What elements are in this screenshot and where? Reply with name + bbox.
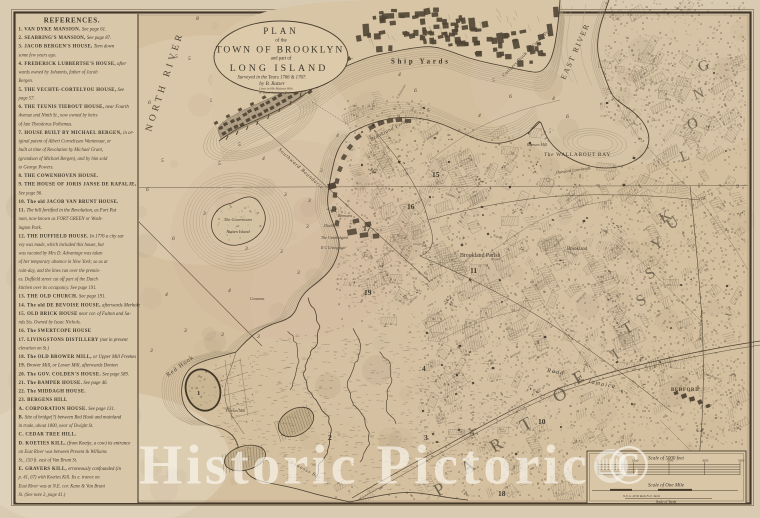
svg-text:East River was at N.E. cor. Ka: East River was at N.E. cor. Kane & Van B… xyxy=(18,484,106,489)
svg-text:Surveyed in the Years 1766 & 1: Surveyed in the Years 1766 & 1767. xyxy=(238,76,307,81)
svg-text:See page 96.: See page 96. xyxy=(19,191,43,196)
svg-text:was vacated by Mrs D. Advanta: was vacated by Mrs D. Advantage was take… xyxy=(19,252,104,257)
svg-text:5: 5 xyxy=(161,158,164,164)
svg-text:3: 3 xyxy=(149,348,153,354)
svg-text:Freekes Mill: Freekes Mill xyxy=(225,409,245,413)
svg-text:some few years ago.: some few years ago. xyxy=(19,53,57,58)
svg-text:18. The OLD BROWER MILL, or Up: 18. The OLD BROWER MILL, or Upper Mill F… xyxy=(19,355,137,360)
svg-text:10: 10 xyxy=(538,417,546,426)
svg-text:B. Site of bridge(?) between R: B. Site of bridge(?) between Red Hook an… xyxy=(19,415,122,420)
svg-text:St. (See note 2, page 41.): St. (See note 2, page 41.) xyxy=(19,493,66,498)
svg-text:Ship Yards: Ship Yards xyxy=(391,59,451,66)
svg-text:9. THE HOUSE OF JORIS JANSE DE: 9. THE HOUSE OF JORIS JANSE DE RAPALJE, xyxy=(19,183,137,188)
svg-text:LONG ISLAND: LONG ISLAND xyxy=(230,63,329,74)
svg-text:5: 5 xyxy=(427,108,430,114)
svg-text:19. Brower Mill, or Lower Mill: 19. Brower Mill, or Lower Mill, afterwar… xyxy=(19,364,119,369)
svg-text:of the: of the xyxy=(275,39,287,44)
svg-text:5: 5 xyxy=(175,54,178,60)
svg-text:8: 8 xyxy=(196,16,199,22)
svg-text:Bergen.: Bergen. xyxy=(19,79,34,84)
svg-text:6: 6 xyxy=(414,88,417,94)
svg-text:4: 4 xyxy=(478,113,481,119)
svg-text:3000: 3000 xyxy=(702,459,709,463)
svg-text:D. KOETIES KILL, (from Koetje,: D. KOETIES KILL, (from Koetje, a cow) it… xyxy=(19,441,132,446)
svg-text:Scale of Yards: Scale of Yards xyxy=(656,500,677,504)
svg-text:11. The hill fortified in the: 11. The hill fortified in the Revolution… xyxy=(19,209,117,214)
svg-text:kitchen over its occupancy. Se: kitchen over its occupancy. See page 191… xyxy=(19,286,97,291)
svg-text:6: 6 xyxy=(146,187,149,193)
svg-text:7. HOUSE BUILT BY MICHAEL BERG: 7. HOUSE BUILT BY MICHAEL BERGEN, in or- xyxy=(19,131,135,136)
svg-text:1: 1 xyxy=(197,390,200,397)
svg-text:to George Powers.: to George Powers. xyxy=(19,165,54,170)
svg-text:St., 150 ft. east of Van Brunt: St., 150 ft. east of Van Brunt St. xyxy=(19,459,78,464)
svg-text:BEDFORD: BEDFORD xyxy=(671,388,699,393)
svg-text:built at time of Revolution by: built at time of Revolution by Michael G… xyxy=(19,148,104,153)
svg-text:6: 6 xyxy=(172,236,175,242)
svg-text:elevation on St.): elevation on St.) xyxy=(19,346,50,351)
svg-text:1. VAN DYKE MANSION. See page: 1. VAN DYKE MANSION. See page 61. xyxy=(19,28,107,33)
svg-text:3: 3 xyxy=(220,332,224,338)
svg-text:20. The GOV. COLDEN'S HOUSE. S: 20. The GOV. COLDEN'S HOUSE. See page 58… xyxy=(19,372,130,377)
svg-text:ington Park.: ington Park. xyxy=(19,226,42,231)
svg-text:Avenue and Ninth St., now owne: Avenue and Ninth St., now owned by heirs xyxy=(18,114,98,119)
svg-text:4: 4 xyxy=(262,156,265,162)
svg-text:3: 3 xyxy=(296,270,300,276)
svg-text:The WALLABOUT BAY: The WALLABOUT BAY xyxy=(544,152,611,158)
svg-text:6. THE TEUNIS TIEBOUT HOUSE, n: 6. THE TEUNIS TIEBOUT HOUSE, near Fourth xyxy=(19,105,130,110)
svg-text:TOWN OF BROOKLYN: TOWN OF BROOKLYN xyxy=(216,45,344,56)
svg-text:3: 3 xyxy=(305,224,309,230)
svg-text:A. CORPORATION HOUSE. See page: A. CORPORATION HOUSE. See page 131. xyxy=(19,407,116,412)
svg-text:5: 5 xyxy=(188,56,191,62)
svg-text:6: 6 xyxy=(566,114,569,120)
svg-text:R C Livingston: R C Livingston xyxy=(320,245,345,250)
svg-text:nds Sts. Owned by Isaac Nichol: nds Sts. Owned by Isaac Nichols. xyxy=(19,321,81,326)
svg-text:(grandson of Michael Bergen),: (grandson of Michael Bergen), and by him… xyxy=(19,157,109,162)
svg-text:16. The SWERTCOPE HOUSE: 16. The SWERTCOPE HOUSE xyxy=(19,329,92,334)
svg-text:REFERENCES.: REFERENCES. xyxy=(44,17,101,25)
svg-text:and part of: and part of xyxy=(271,57,292,62)
svg-text:of her temporary absence in Ne: of her temporary absence in New York; so… xyxy=(19,260,109,265)
svg-text:nam, now known as FORT GREEN o: nam, now known as FORT GREEN or Wash- xyxy=(19,217,104,222)
svg-text:PLAN: PLAN xyxy=(263,26,299,36)
svg-text:15. OLD BRICK HOUSE near cor.: 15. OLD BRICK HOUSE near cor. of Fulton … xyxy=(19,312,132,317)
svg-text:3: 3 xyxy=(183,328,187,334)
svg-text:The Governours: The Governours xyxy=(224,217,252,222)
svg-text:Nutten Island: Nutten Island xyxy=(225,229,250,234)
svg-text:Wyckoff: Wyckoff xyxy=(491,257,502,261)
svg-text:Gowanus: Gowanus xyxy=(250,297,265,301)
svg-text:of late Theodorus Polhemus.: of late Theodorus Polhemus. xyxy=(19,122,73,127)
svg-text:3: 3 xyxy=(244,246,248,252)
svg-text:4: 4 xyxy=(398,72,401,78)
svg-text:9: 9 xyxy=(736,184,739,190)
svg-text:6: 6 xyxy=(509,94,512,100)
svg-text:C. CEDAR TREE HILL.: C. CEDAR TREE HILL. xyxy=(19,433,77,438)
svg-text:3: 3 xyxy=(256,334,260,340)
svg-text:8. THE COWENHOVEN HOUSE.: 8. THE COWENHOVEN HOUSE. xyxy=(19,174,99,179)
svg-text:rain-day, and the lines run ov: rain-day, and the lines run over the pre… xyxy=(19,269,101,274)
svg-text:21. The BAMPER HOUSE. See page: 21. The BAMPER HOUSE. See page 46. xyxy=(19,381,108,386)
svg-text:3: 3 xyxy=(307,198,311,204)
svg-text:10. The old JACOB VAN BRUNT HO: 10. The old JACOB VAN BRUNT HOUSE. xyxy=(19,200,119,205)
svg-text:Scale of One Mile: Scale of One Mile xyxy=(648,484,685,489)
svg-text:2000: 2000 xyxy=(667,459,674,463)
svg-text:Historic Pictoric ©: Historic Pictoric © xyxy=(139,435,653,497)
svg-text:vey was made, which included t: vey was made, which included this house,… xyxy=(19,243,105,248)
svg-text:4: 4 xyxy=(228,288,231,294)
svg-text:14. The old DE BEVOISE HOUSE,: 14. The old DE BEVOISE HOUSE, afterwards… xyxy=(19,303,141,308)
svg-text:4: 4 xyxy=(552,96,555,102)
svg-text:E. GRAVERS KILL, erroneously c: E. GRAVERS KILL, erroneously confounded … xyxy=(19,467,122,472)
svg-text:5: 5 xyxy=(238,142,241,148)
svg-text:p. 41, 67) with Koeties Kill.: p. 41, 67) with Koeties Kill. Its e. tra… xyxy=(18,476,101,481)
svg-text:5: 5 xyxy=(492,78,495,84)
svg-text:2. SEABRING'S MANSION, See pag: 2. SEABRING'S MANSION, See page 87. xyxy=(19,36,112,41)
svg-text:es. Duffield street cut off pa: es. Duffield street cut off part of the … xyxy=(19,278,99,283)
svg-text:3. JACOB BERGEN'S HOUSE, Torn: 3. JACOB BERGEN'S HOUSE, Torn down xyxy=(19,45,115,50)
svg-text:Distillery: Distillery xyxy=(323,223,339,228)
svg-text:17. LIVINGSTONS DISTILLERY (no: 17. LIVINGSTONS DISTILLERY (not in prese… xyxy=(19,338,129,343)
svg-text:Doughty: Doughty xyxy=(412,242,425,246)
svg-text:wards owned by Johannis, fathe: wards owned by Johannis, father of Jacob xyxy=(19,71,99,76)
svg-text:6: 6 xyxy=(148,100,151,106)
svg-text:on East River was between Pres: on East River was between Present & Will… xyxy=(19,450,107,455)
svg-text:page 57.: page 57. xyxy=(18,97,35,102)
svg-text:iginal patent of Albert Cornel: iginal patent of Albert Cornelissen Want… xyxy=(19,140,112,145)
svg-text:23. BERGENS HILL: 23. BERGENS HILL xyxy=(19,398,68,403)
svg-text:13. THE OLD CHURCH. See page 1: 13. THE OLD CHURCH. See page 191. xyxy=(19,295,106,300)
svg-text:5: 5 xyxy=(218,161,221,167)
svg-text:5000: 5000 xyxy=(738,459,745,463)
svg-text:or Royal American Regiment: or Royal American Regiment xyxy=(259,90,297,94)
svg-text:4: 4 xyxy=(165,292,168,298)
svg-text:4. FREDERICK LUBBERTSE'S HOUSE: 4. FREDERICK LUBBERTSE'S HOUSE, after xyxy=(19,62,127,67)
svg-text:5. THE VECHTE-CORTELYOU HOUSE,: 5. THE VECHTE-CORTELYOU HOUSE, See xyxy=(19,88,126,93)
svg-text:22. The MIDDAGH HOUSE.: 22. The MIDDAGH HOUSE. xyxy=(19,390,86,395)
svg-text:12. THE DUFFIELD HOUSE. In 177: 12. THE DUFFIELD HOUSE. In 1776 a city s… xyxy=(19,234,124,239)
svg-text:in trade, about 1800, near of: in trade, about 1800, near of Dwight St. xyxy=(19,424,94,429)
